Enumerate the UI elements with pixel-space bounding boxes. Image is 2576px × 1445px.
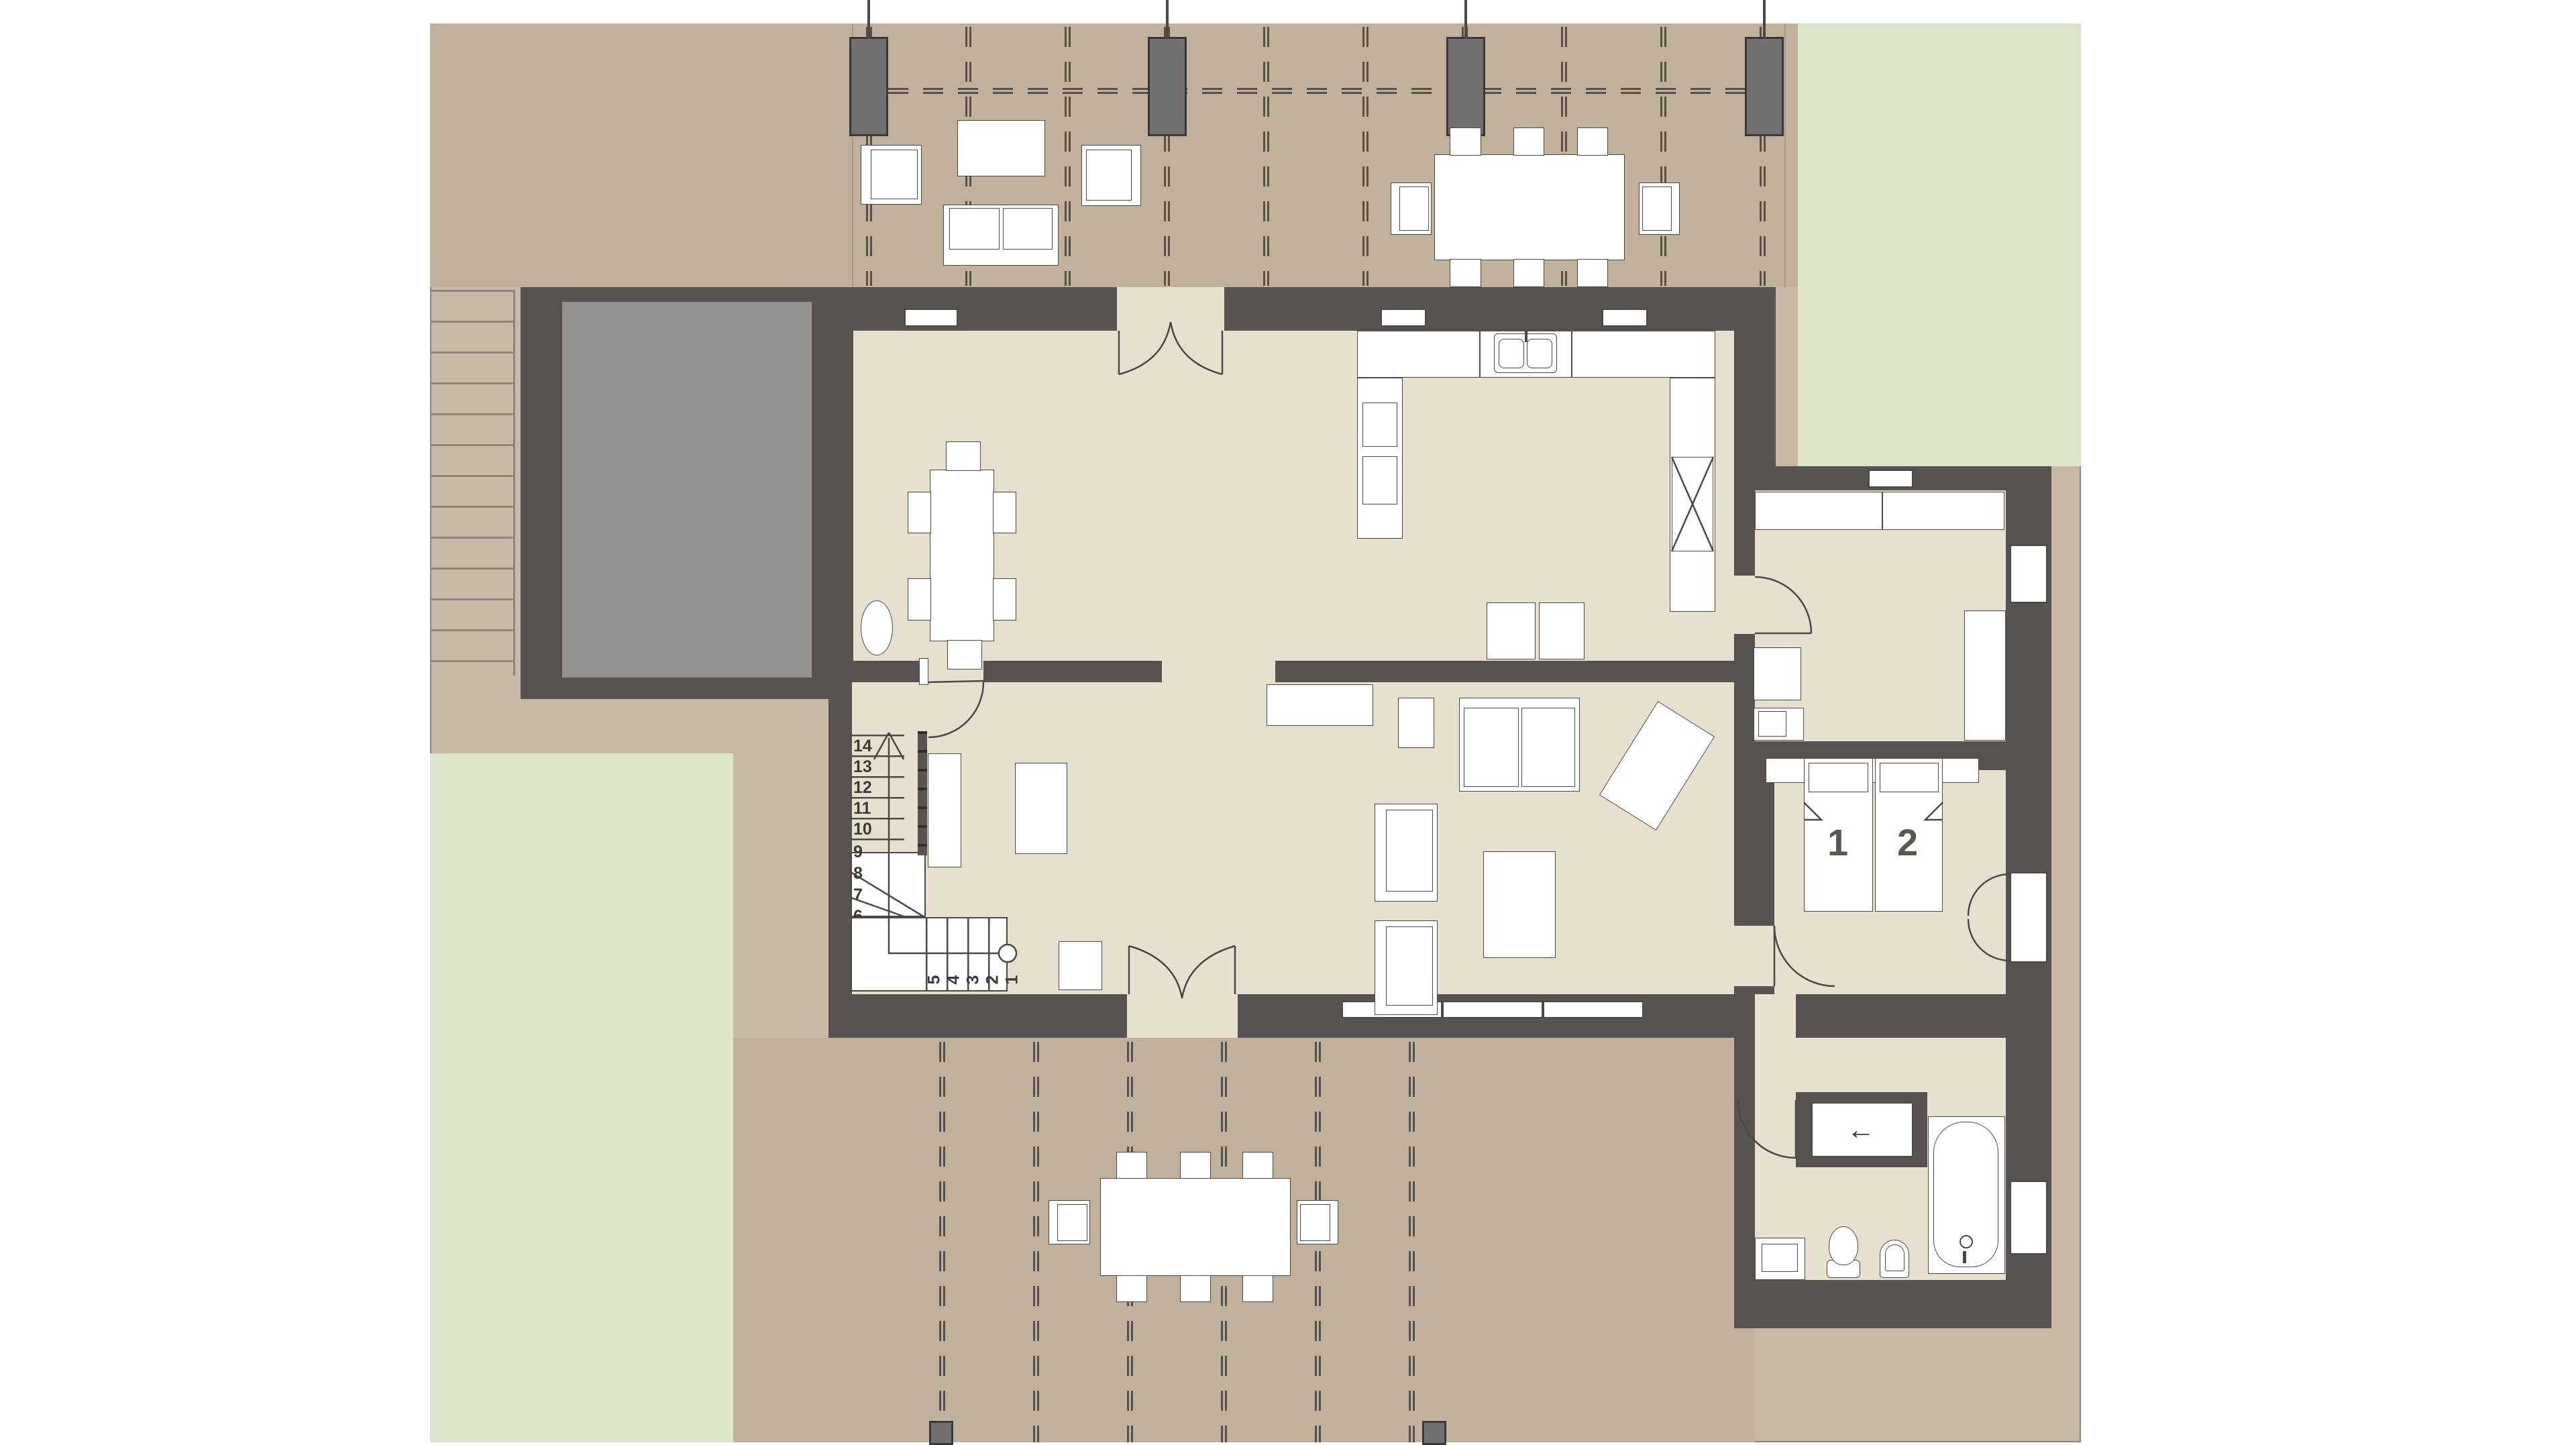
column-axis-line xyxy=(1763,0,1766,39)
chair xyxy=(1242,1275,1273,1302)
chair xyxy=(1577,127,1608,156)
built-in-closet xyxy=(1882,492,2004,530)
stair-tread-number: 9 xyxy=(853,844,863,861)
coffee-table xyxy=(1483,851,1556,958)
window xyxy=(2010,545,2047,603)
bidet xyxy=(1880,1240,1909,1278)
wardrobe xyxy=(1964,610,2006,741)
stair-tread-number: 7 xyxy=(853,887,863,904)
floor-plan: ← xyxy=(0,0,2576,1445)
lounge-table xyxy=(957,120,1045,176)
window-shuttered xyxy=(2010,872,2047,963)
garage-floor xyxy=(562,302,812,678)
side-table xyxy=(1398,698,1434,748)
chair xyxy=(947,640,982,670)
kitchen-appliance xyxy=(1362,456,1397,504)
window xyxy=(1868,470,1913,488)
rafter-dash-line xyxy=(939,1042,945,1442)
rafter-dash-line xyxy=(1409,1042,1415,1442)
chair xyxy=(993,492,1016,533)
passage-opening xyxy=(1162,661,1275,682)
stair-tread-number: 4 xyxy=(945,975,962,985)
stair-tread-number: 10 xyxy=(853,821,872,838)
window xyxy=(1381,309,1426,327)
door-jamb xyxy=(919,658,928,685)
stair-tread-number: 1 xyxy=(1004,975,1020,985)
chair xyxy=(1577,259,1608,287)
chair xyxy=(1487,602,1536,659)
pillow xyxy=(1880,763,1939,792)
bed-number-2: 2 xyxy=(1897,824,1918,861)
pergola-column xyxy=(1446,37,1485,136)
armchair xyxy=(1297,1200,1338,1244)
hall-stool xyxy=(1059,941,1102,990)
stair-tread-number: 5 xyxy=(926,975,943,985)
rafter-dash-line xyxy=(1033,1042,1039,1442)
floor-plant xyxy=(861,600,893,655)
lawn-top-right xyxy=(1798,23,2081,466)
rafter-dash-line xyxy=(1660,27,1666,286)
vestibule-door-opening xyxy=(1734,576,1755,634)
vanity xyxy=(1755,1238,1805,1280)
pergola-column xyxy=(929,1421,953,1445)
chair xyxy=(946,441,981,471)
window-mullion xyxy=(1441,1001,1444,1018)
window-mullion xyxy=(1542,1001,1544,1018)
tv-sideboard xyxy=(1267,684,1373,726)
pergola-column xyxy=(1745,37,1784,136)
chair xyxy=(1450,127,1481,156)
kitchen-appliance xyxy=(1362,403,1397,447)
hall-sideboard xyxy=(928,753,961,867)
chair xyxy=(1116,1275,1147,1302)
vestibule-cabinet xyxy=(1754,647,1801,700)
armchair xyxy=(1391,182,1432,235)
chair xyxy=(1450,259,1481,287)
chair xyxy=(1242,1152,1273,1179)
hall-cabinet xyxy=(1015,763,1067,854)
oven xyxy=(1672,457,1713,551)
chair xyxy=(993,578,1016,621)
armchair xyxy=(1375,920,1438,1015)
exterior-steps xyxy=(431,290,515,676)
stair-tread-number: 2 xyxy=(984,975,1001,985)
lounge-sofa xyxy=(943,205,1059,266)
terrace-dining-table xyxy=(1434,154,1625,260)
closet-arrow: ← xyxy=(1847,1116,1875,1144)
kitchen-sink xyxy=(1494,333,1557,373)
pergola-beam-line xyxy=(853,88,1784,94)
rafter-dash-line xyxy=(1362,27,1368,286)
armchair xyxy=(1639,182,1680,235)
stair-tread-number: 8 xyxy=(853,865,863,882)
chair xyxy=(1513,259,1544,287)
chair xyxy=(1180,1152,1211,1179)
column-axis-line xyxy=(1166,0,1169,39)
armchair xyxy=(1375,804,1438,902)
chair xyxy=(1539,602,1585,659)
bath-lobby-opening xyxy=(1755,994,1796,1038)
bed-number-1: 1 xyxy=(1827,824,1848,861)
counter-divider xyxy=(1571,331,1572,378)
lounge-chair xyxy=(861,145,922,205)
stair-tread-number: 11 xyxy=(853,800,871,817)
terrace-dining-table xyxy=(1100,1178,1291,1276)
dining-table xyxy=(930,470,994,641)
sofa xyxy=(1459,698,1580,792)
built-in-closet xyxy=(1755,492,1882,530)
column-axis-line xyxy=(867,0,870,39)
pergola-column xyxy=(849,37,888,136)
bathtub xyxy=(1928,1116,2005,1274)
vestibule-box xyxy=(1754,708,1804,741)
chair xyxy=(1116,1152,1147,1179)
armchair xyxy=(1049,1200,1090,1244)
chair xyxy=(908,578,931,621)
stair-tread-number: 3 xyxy=(965,975,981,985)
rafter-dash-line xyxy=(1065,27,1071,286)
terrace-door-opening-bottom xyxy=(1127,994,1238,1038)
bedroom-door-opening xyxy=(1734,926,1774,986)
window xyxy=(2010,1181,2047,1254)
rafter-dash-line xyxy=(1263,27,1269,286)
pillow xyxy=(1809,763,1868,792)
pergola-column xyxy=(1148,37,1187,136)
terrace-door-opening-top xyxy=(1117,287,1224,331)
stair-tread-number: 12 xyxy=(853,780,872,796)
toilet-bowl xyxy=(1829,1226,1858,1265)
column-axis-line xyxy=(1464,0,1467,39)
window xyxy=(904,309,958,327)
pergola-column xyxy=(1422,1421,1446,1445)
terrace-edge-right xyxy=(1784,23,1786,287)
chair xyxy=(1513,127,1544,156)
lounge-chair xyxy=(1081,145,1141,206)
stair-handrail xyxy=(918,731,927,855)
lawn-bottom-left xyxy=(430,753,733,1442)
window xyxy=(1602,309,1648,327)
stair-tread-number: 14 xyxy=(853,738,872,755)
chair xyxy=(1180,1275,1211,1302)
counter-divider xyxy=(1479,331,1481,378)
chair xyxy=(908,492,931,533)
stair-tread-number: 13 xyxy=(853,759,872,775)
